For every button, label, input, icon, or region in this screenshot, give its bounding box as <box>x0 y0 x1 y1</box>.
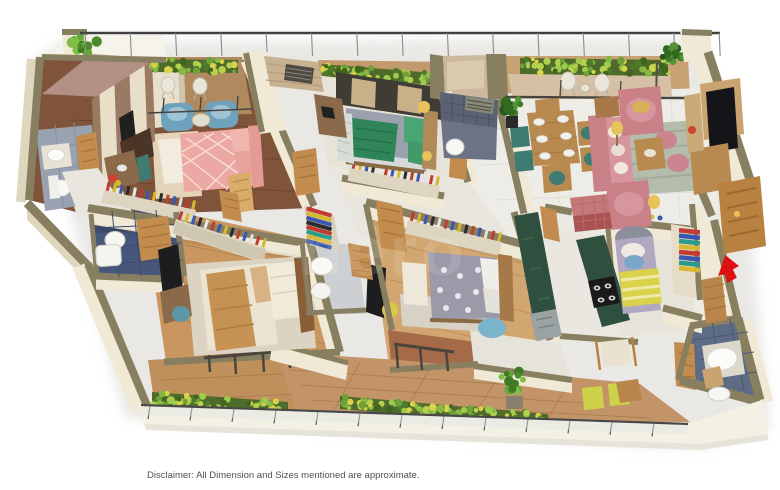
svg-text:nero: nero <box>300 212 468 290</box>
svg-text:Disclaimer: All Dimension and: Disclaimer: All Dimension and Sizes ment… <box>147 470 419 481</box>
